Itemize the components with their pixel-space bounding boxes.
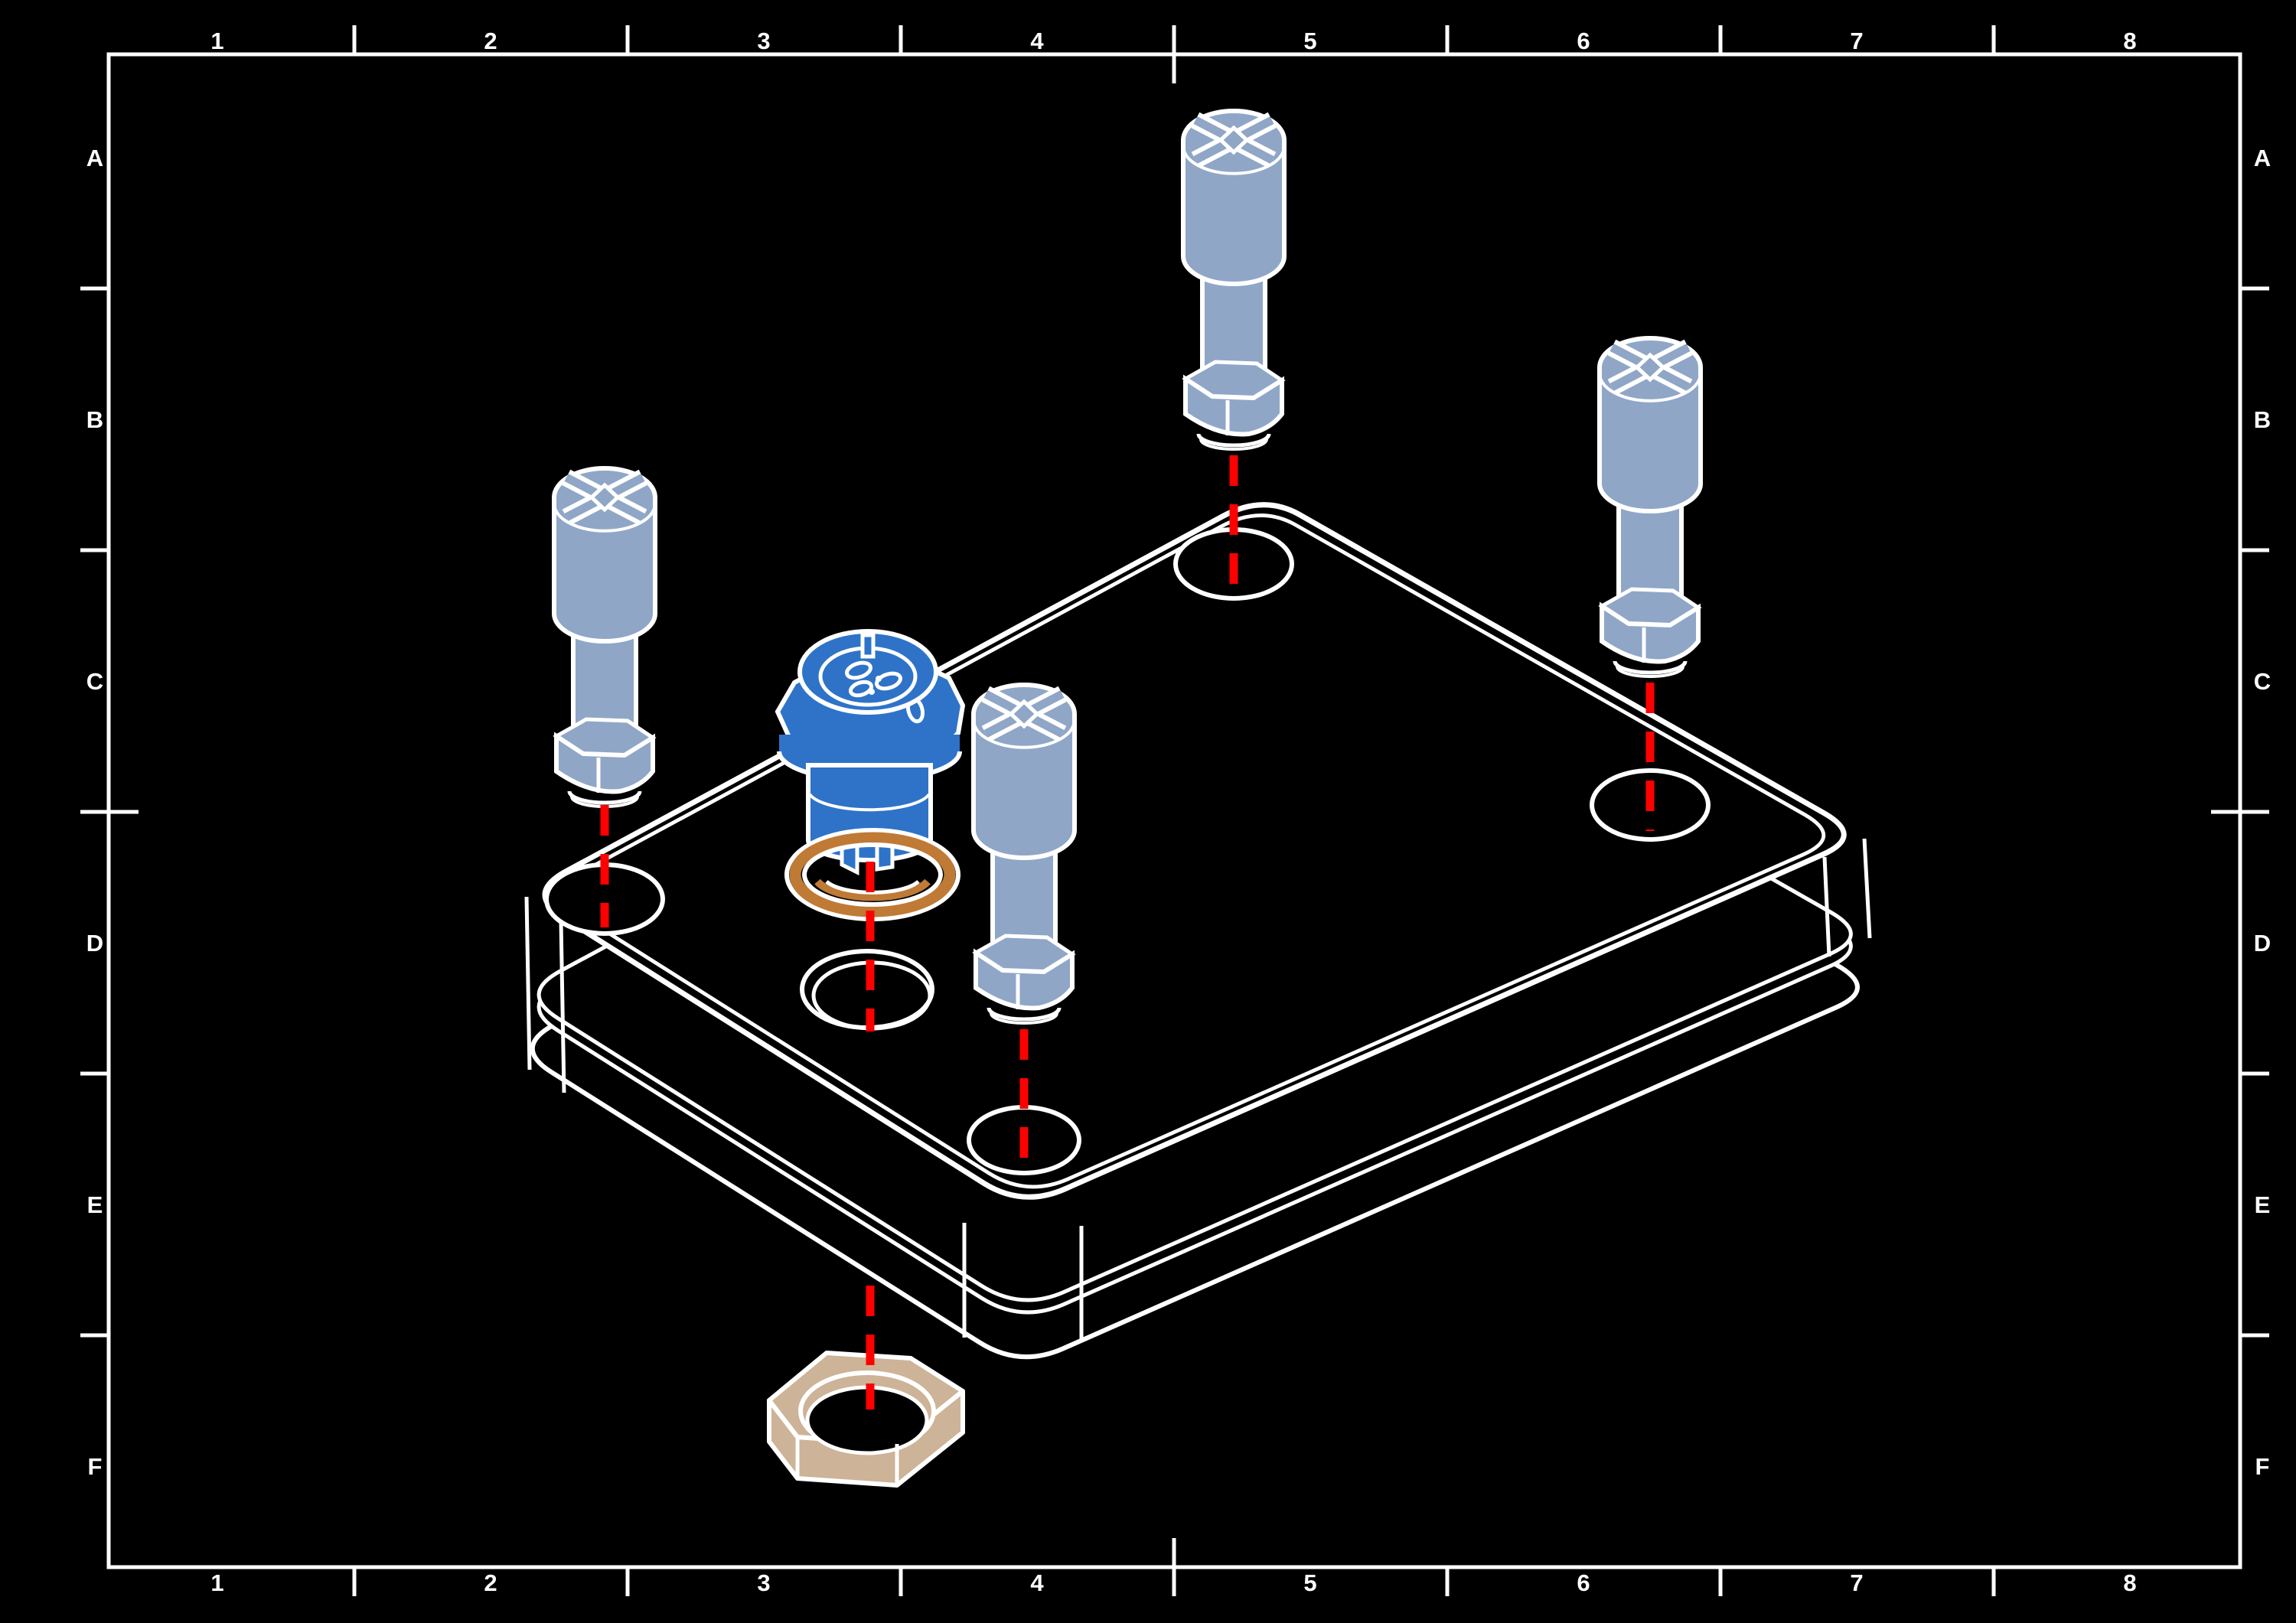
grid-label: E [87, 1191, 103, 1218]
grid-label: 1 [210, 28, 223, 54]
grid-label: 3 [757, 1569, 770, 1596]
grid-label: 5 [1303, 1569, 1316, 1596]
screw-top [1183, 111, 1284, 449]
grid-label: D [2254, 930, 2271, 957]
grid-label: B [2254, 406, 2271, 433]
grid-label: 7 [1850, 1569, 1863, 1596]
grid-label: C [2254, 668, 2271, 695]
exploded-assembly-drawing: 1 2 3 4 5 6 7 8 1 2 3 4 5 6 7 8 A B C D … [0, 0, 2296, 1623]
grid-label: C [86, 668, 103, 695]
connector-pin-dot [869, 689, 875, 695]
screw-right [1600, 338, 1701, 676]
grid-label: 3 [757, 28, 770, 54]
grid-label: E [2255, 1191, 2271, 1218]
grid-label: 6 [1577, 28, 1590, 54]
grid-label: B [86, 406, 103, 433]
grid-label: F [88, 1453, 103, 1480]
grid-label: 1 [210, 1569, 223, 1596]
grid-label: A [2254, 145, 2271, 171]
grid-label: A [86, 145, 103, 171]
grid-label: 5 [1303, 28, 1316, 54]
connector-key-notch [863, 635, 873, 657]
grid-label: 8 [2123, 1569, 2136, 1596]
grid-label: D [86, 930, 103, 957]
screw-left [554, 468, 655, 807]
connector-pin-dot [876, 676, 882, 682]
grid-label: 4 [1030, 28, 1044, 54]
grid-label: 7 [1850, 28, 1863, 54]
grid-label: 2 [484, 1569, 497, 1596]
hex-nut [769, 1353, 963, 1485]
grid-label: F [2255, 1453, 2270, 1480]
grid-label: 6 [1577, 1569, 1590, 1596]
grid-label: 4 [1030, 1569, 1044, 1596]
grid-label: 2 [484, 28, 497, 54]
grid-label: 8 [2123, 28, 2136, 54]
